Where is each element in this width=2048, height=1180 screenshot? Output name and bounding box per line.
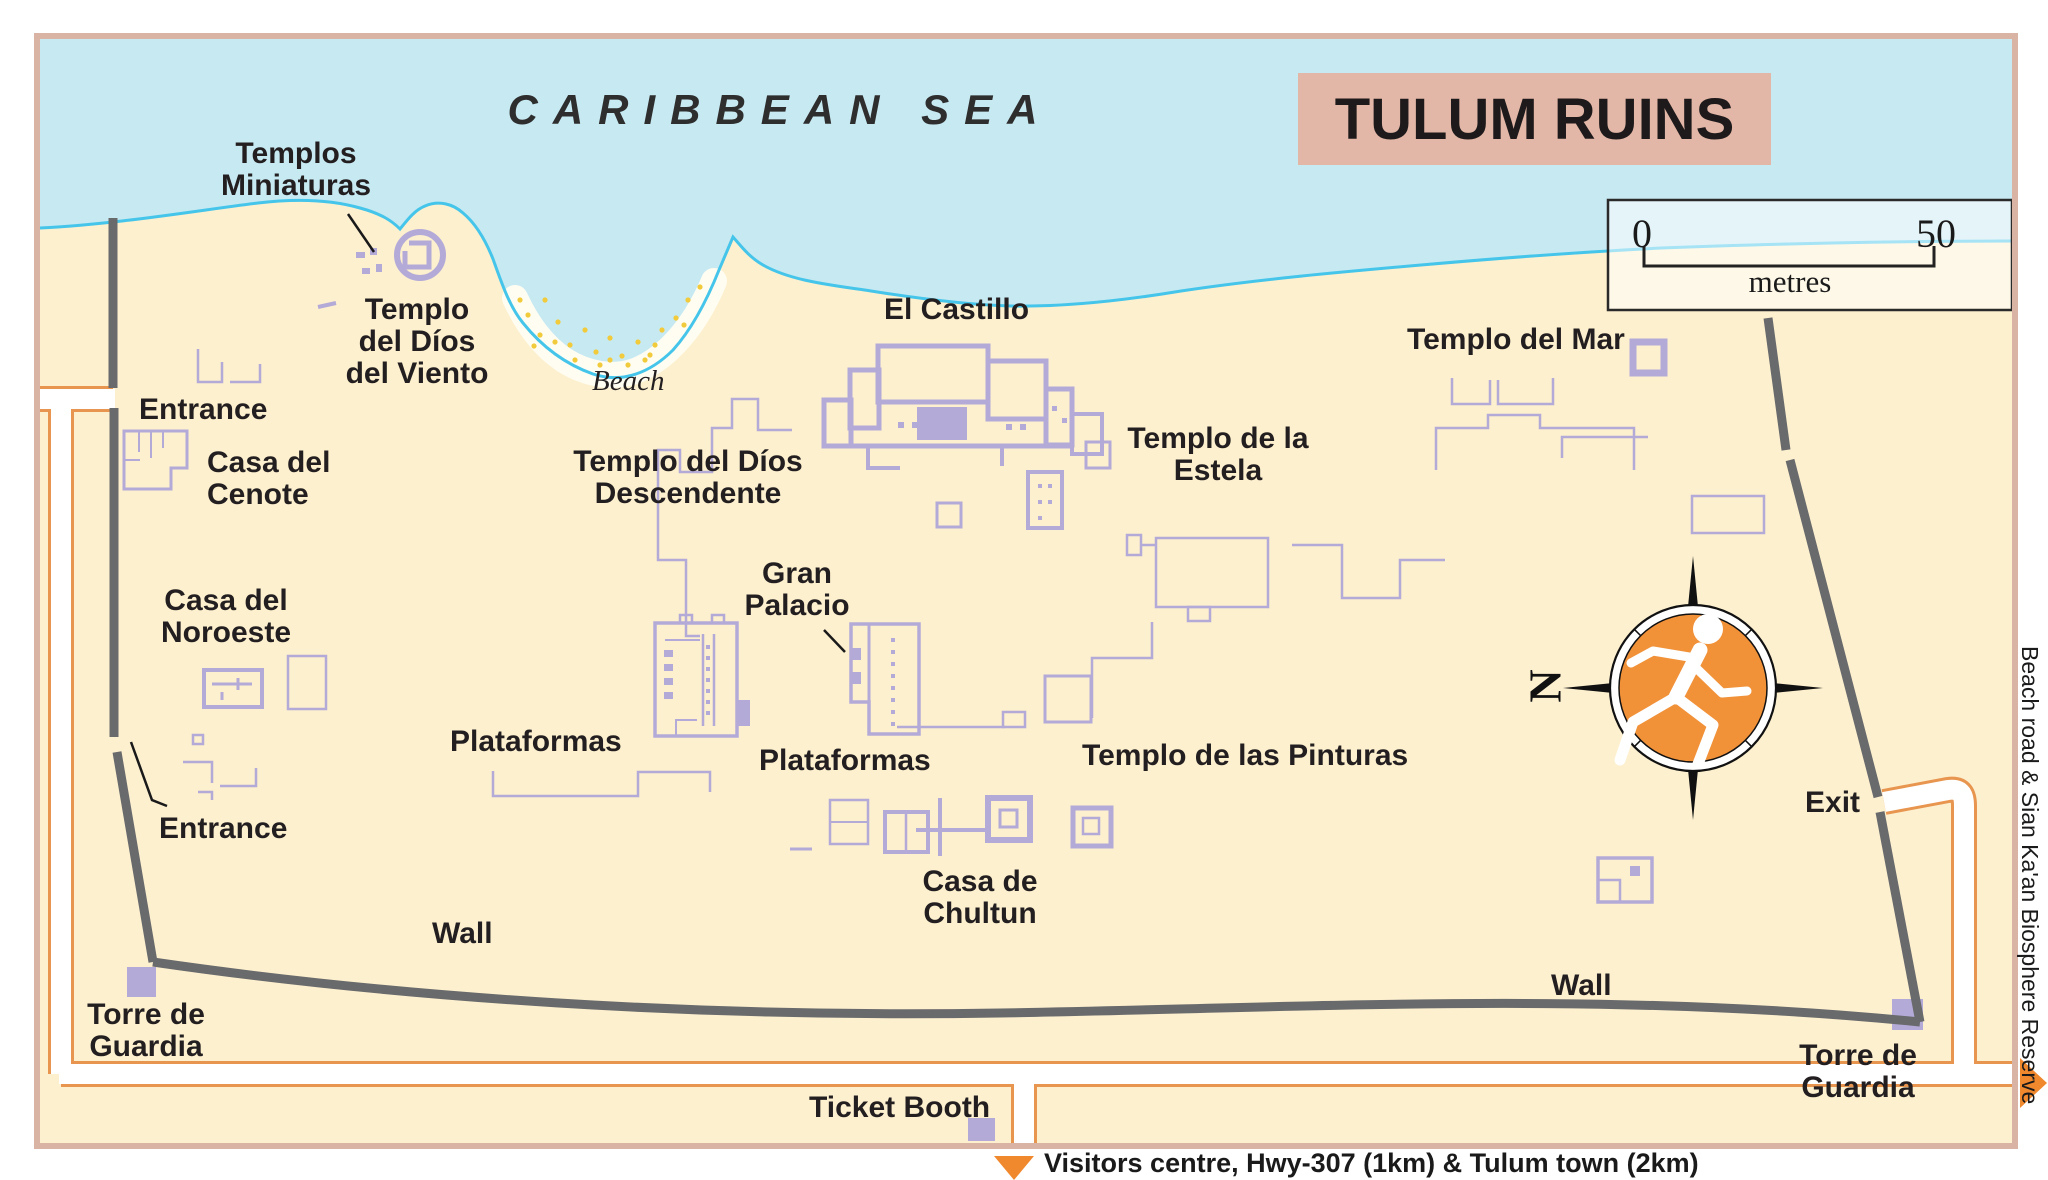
- label-casa-del-noroeste: Casa del Noroeste: [161, 585, 291, 649]
- label-templo-descendente: Templo del Díos Descendente: [573, 446, 802, 510]
- label-entrance-north: Entrance: [139, 394, 267, 426]
- label-gran-palacio: Gran Palacio: [744, 558, 849, 622]
- map-canvas: [38, 39, 2014, 1148]
- label-templo-del-viento: Templo del Díos del Viento: [346, 294, 489, 389]
- scale-end: 50: [1916, 210, 1956, 257]
- label-el-castillo: El Castillo: [884, 294, 1029, 326]
- label-beach: Beach: [592, 366, 664, 397]
- label-ticket-booth: Ticket Booth: [809, 1092, 990, 1124]
- arrow-down-icon: [994, 1156, 1034, 1180]
- label-wall-west: Wall: [432, 918, 493, 950]
- label-plataformas-center: Plataformas: [759, 745, 931, 777]
- ruin-torre-west-square: [127, 967, 156, 997]
- caption-visitors-centre: Visitors centre, Hwy-307 (1km) & Tulum t…: [1044, 1148, 1699, 1179]
- title-banner: TULUM RUINS: [1298, 73, 1771, 165]
- scale-unit: metres: [1749, 264, 1832, 300]
- label-templo-del-mar: Templo del Mar: [1407, 324, 1625, 356]
- label-torre-de-guardia-west: Torre de Guardia: [87, 999, 205, 1063]
- compass-north-label: N: [1519, 669, 1572, 702]
- label-templo-de-las-pinturas: Templo de las Pinturas: [1082, 740, 1408, 772]
- label-templos-miniaturas: Templos Miniaturas: [221, 138, 371, 202]
- label-torre-de-guardia-east: Torre de Guardia: [1799, 1040, 1917, 1104]
- label-exit: Exit: [1805, 787, 1860, 819]
- label-templo-de-la-estela: Templo de la Estela: [1127, 423, 1308, 487]
- label-caribbean-sea: CARIBBEAN SEA: [507, 88, 1052, 133]
- label-entrance-west: Entrance: [159, 813, 287, 845]
- label-wall-east: Wall: [1551, 970, 1612, 1002]
- label-casa-de-chultun: Casa de Chultun: [922, 866, 1037, 930]
- page-title: TULUM RUINS: [1335, 86, 1735, 153]
- label-plataformas-west: Plataformas: [450, 726, 622, 758]
- tulum-ruins-map-page: TULUM RUINS CARIBBEAN SEA Templos Miniat…: [0, 0, 2048, 1180]
- label-casa-del-cenote: Casa del Cenote: [207, 447, 330, 511]
- scale-start: 0: [1632, 210, 1652, 257]
- caption-beach-road: Beach road & Sian Ka'an Biosphere Reserv…: [2016, 646, 2043, 1086]
